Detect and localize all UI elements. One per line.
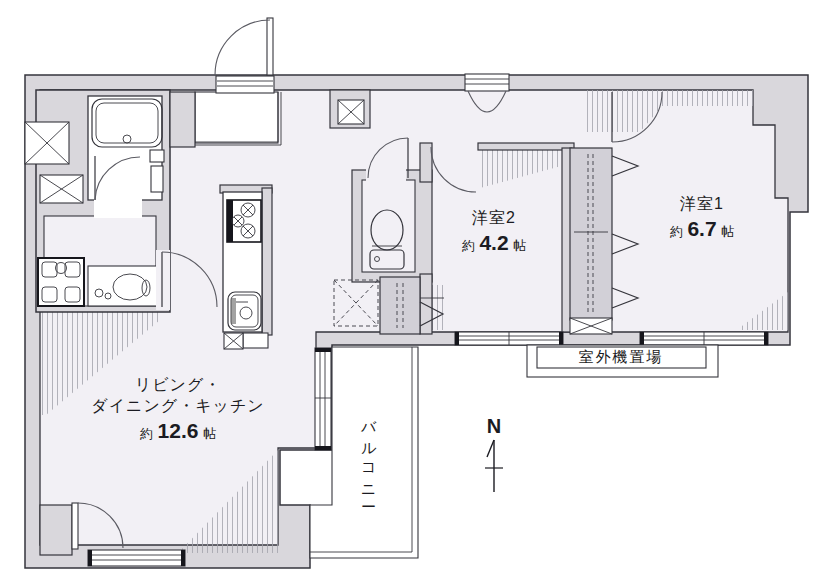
entrance-door-swing [215,20,270,75]
bedroom2-name: 洋室2 [462,208,526,229]
bedroom2-area-unit: 帖 [513,238,526,253]
pillar [170,92,195,147]
shaft-xbox [338,100,364,124]
entrance-threshold [216,76,274,93]
bedroom2-label: 洋室2 約 4.2 帖 [462,208,526,256]
bedroom2-area: 約 4.2 帖 [462,229,526,256]
floorplan-drawing [0,0,825,588]
ldk-area: 約 12.6 帖 [91,416,264,443]
window-bedroom2-south [455,332,563,345]
bath-door-opening [94,196,142,218]
bedroom2-area-value: 4.2 [479,231,508,254]
washroom-door-opening [156,250,170,310]
shaft-xbox [40,175,83,203]
floorplan-canvas: リビング・ ダイニング・キッチン 約 12.6 帖 洋室2 約 4.2 帖 洋室… [0,0,825,588]
kitchen-stove-icon [227,200,261,242]
north-arrow-icon [485,440,503,492]
balcony-sliding-door [315,348,331,450]
pillar-xbox [224,333,243,349]
ldk-label: リビング・ ダイニング・キッチン 約 12.6 帖 [91,375,264,444]
ldk-area-unit: 帖 [203,425,216,440]
balcony-label: バルコニー [359,410,379,503]
closet-xbox [570,318,612,334]
laundry-pan-icon [38,258,84,306]
window-ldk-south [88,550,185,566]
bedroom2-area-prefix: 約 [462,238,475,253]
genkan-floor [195,92,278,143]
outdoor-unit-label: 室外機置場 [579,347,664,367]
bedroom1-label: 洋室1 約 6.7 帖 [670,194,734,242]
window-bedroom1-south [640,332,768,345]
ldk-area-prefix: 約 [140,425,153,440]
north-label: N [487,413,501,439]
bedroom1-area-value: 6.7 [687,217,716,240]
kitchen [220,185,272,349]
ldk-name-line2: ダイニング・キッチン [91,395,264,416]
toilet-door-opening [366,166,406,182]
entrance-door-leaf [267,18,273,75]
bath-counter [150,150,164,162]
ldk-name-line1: リビング・ [91,375,264,396]
storage-door-leaf [72,503,78,549]
bedroom1-name: 洋室1 [670,194,734,215]
bedroom1-area-unit: 帖 [721,224,734,239]
bath-fixture [151,166,163,192]
bedroom1-area-prefix: 約 [670,224,683,239]
washbasin-icon [88,266,158,306]
shaft-xbox [25,122,69,164]
bedroom1-area: 約 6.7 帖 [670,215,734,242]
counter-end [243,333,268,348]
ldk-area-value: 12.6 [158,418,199,441]
